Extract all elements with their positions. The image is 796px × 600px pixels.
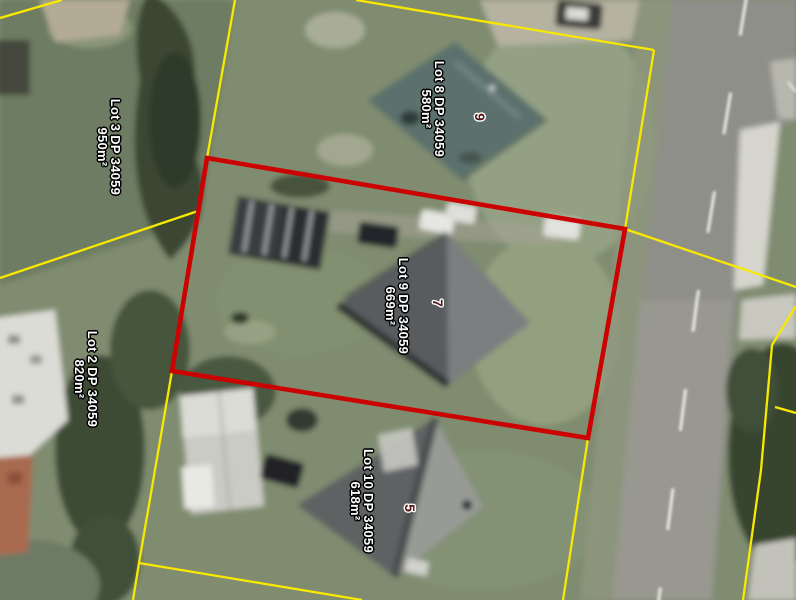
- aerial-parcel-map[interactable]: Lot 8 DP 34059 580m² Lot 3 DP 34059 950m…: [0, 0, 796, 600]
- aerial-photo-layer: [0, 0, 796, 600]
- outbuildings-lot10: [180, 388, 264, 514]
- shed-top-left: [0, 40, 30, 95]
- driveway-east: [739, 294, 796, 340]
- map-canvas: [0, 0, 796, 600]
